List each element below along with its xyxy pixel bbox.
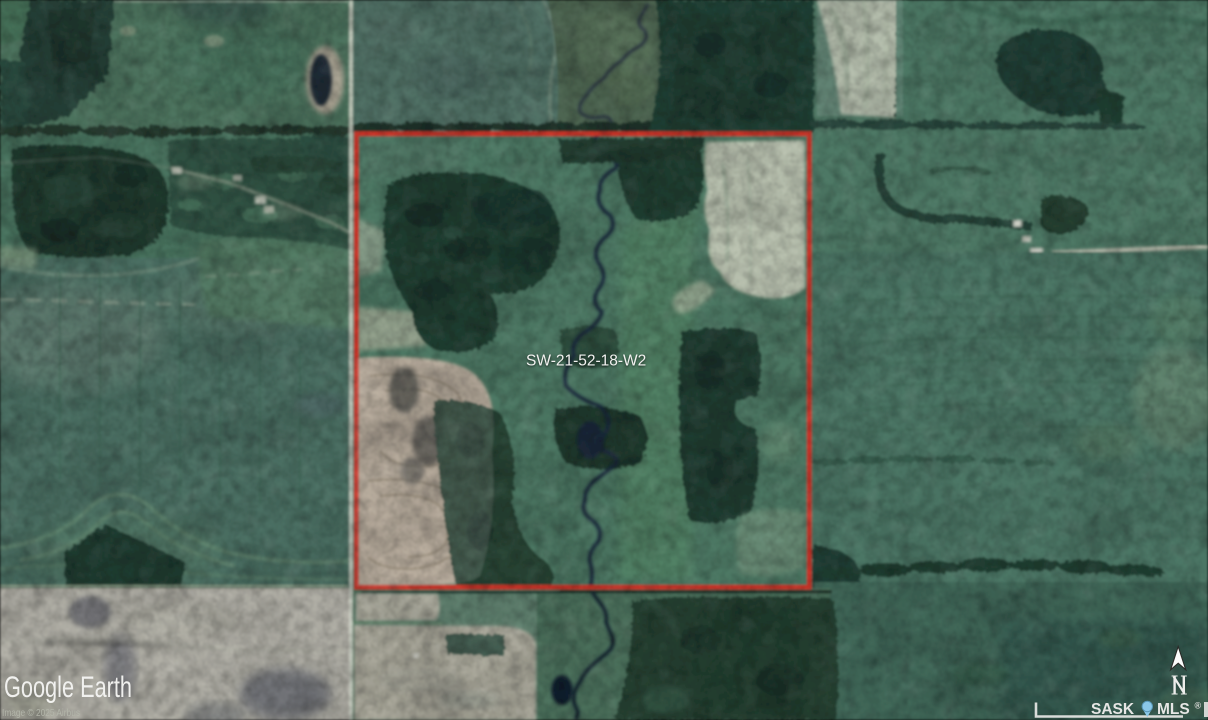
- svg-text:MLS: MLS: [1157, 701, 1190, 718]
- svg-text:Google Earth: Google Earth: [4, 671, 132, 704]
- svg-text:®: ®: [1195, 701, 1202, 711]
- svg-text:SASK: SASK: [1091, 701, 1135, 718]
- svg-text:SW-21-52-18-W2: SW-21-52-18-W2: [526, 353, 646, 370]
- svg-text:Image © 2025 Airbus: Image © 2025 Airbus: [2, 707, 80, 719]
